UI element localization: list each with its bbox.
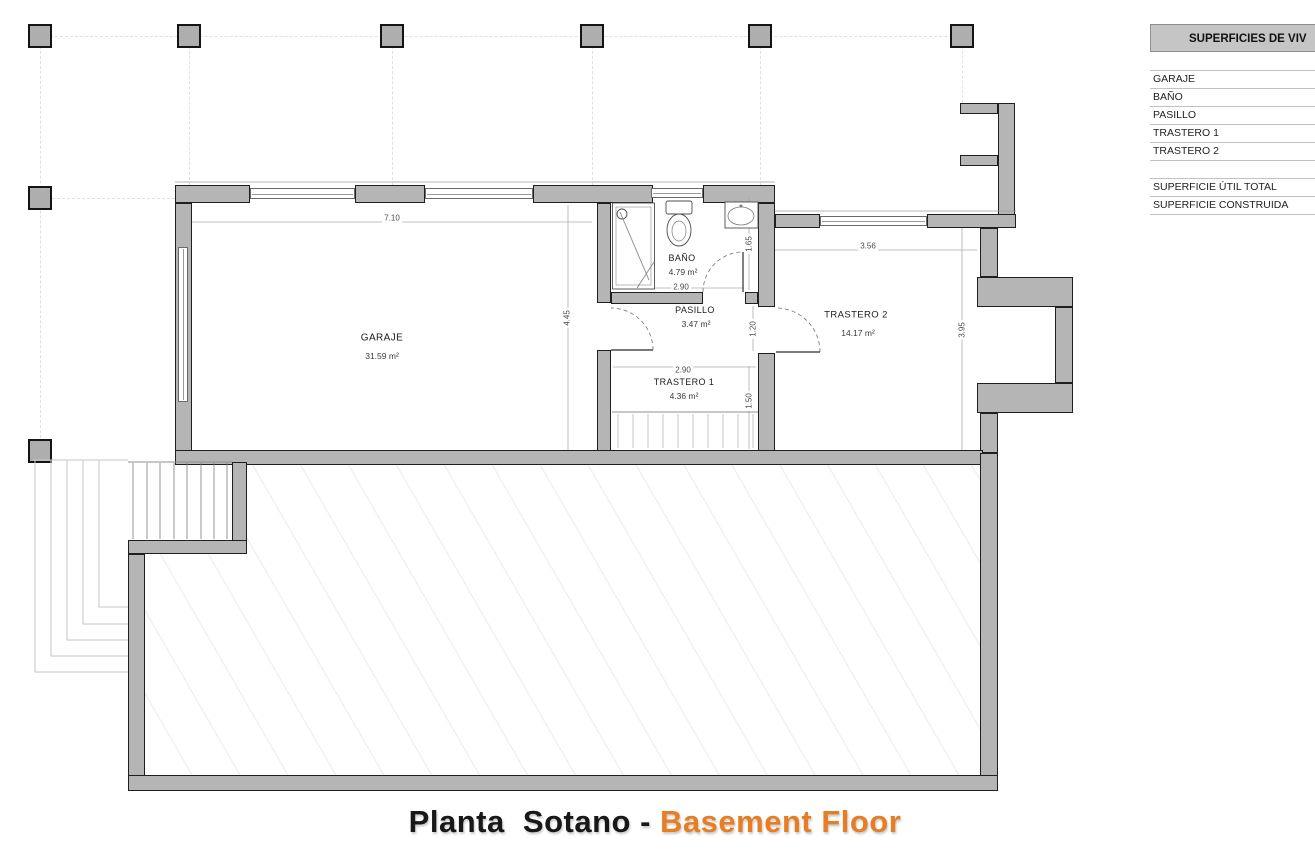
dim-pasillo-width: 1.20 bbox=[749, 319, 758, 339]
table-row: BAÑO bbox=[1150, 89, 1315, 107]
table-row: TRASTERO 1 bbox=[1150, 125, 1315, 143]
window bbox=[178, 247, 188, 402]
wall-segment bbox=[1055, 307, 1073, 383]
table-row bbox=[1150, 161, 1315, 179]
wall-segment bbox=[597, 350, 611, 453]
window bbox=[425, 188, 533, 199]
wall-segment bbox=[128, 540, 247, 554]
dim-trastero1-width: 2.90 bbox=[673, 366, 693, 375]
wall-segment bbox=[960, 155, 998, 166]
wall-segment bbox=[980, 228, 998, 277]
wall-segment bbox=[128, 775, 998, 791]
column bbox=[580, 24, 604, 48]
column bbox=[950, 24, 974, 48]
unexcavated-area-hatch bbox=[145, 465, 980, 775]
table-row: GARAJE bbox=[1150, 70, 1315, 89]
room-area-pasillo: 3.47 m² bbox=[682, 319, 711, 329]
column bbox=[28, 186, 52, 210]
wall-segment bbox=[232, 462, 247, 545]
table-row: TRASTERO 2 bbox=[1150, 143, 1315, 161]
room-area-garaje: 31.59 m² bbox=[365, 351, 399, 361]
grid-line bbox=[189, 36, 190, 185]
window bbox=[250, 188, 355, 199]
room-label-trastero1: TRASTERO 1 bbox=[654, 377, 715, 387]
room-label-garaje: GARAJE bbox=[361, 333, 403, 344]
dim-bano-width: 2.90 bbox=[671, 283, 691, 292]
dim-garage-depth: 4.45 bbox=[563, 308, 572, 328]
grid-line bbox=[40, 36, 41, 438]
window bbox=[651, 188, 703, 198]
wall-segment bbox=[533, 185, 653, 203]
column bbox=[28, 439, 52, 463]
title-spanish: Planta Sotano - bbox=[409, 804, 660, 839]
wall-segment bbox=[977, 277, 1073, 307]
wall-segment bbox=[175, 185, 250, 203]
grid-line bbox=[760, 36, 761, 185]
room-area-trastero2: 14.17 m² bbox=[841, 328, 875, 338]
wall-segment bbox=[927, 214, 1016, 228]
wall-segment bbox=[128, 554, 145, 791]
dim-trastero2-width: 3.56 bbox=[858, 242, 878, 251]
wall-segment bbox=[758, 353, 775, 453]
room-label-trastero2: TRASTERO 2 bbox=[824, 310, 888, 321]
wall-segment bbox=[758, 203, 775, 307]
title-english: Basement Floor bbox=[660, 804, 901, 839]
grid-line bbox=[592, 36, 593, 185]
room-area-bano: 4.79 m² bbox=[669, 267, 698, 277]
column bbox=[177, 24, 201, 48]
window bbox=[820, 216, 927, 226]
wall-segment bbox=[980, 453, 998, 791]
dim-garage-width: 7.10 bbox=[382, 214, 402, 223]
wall-segment bbox=[175, 450, 983, 465]
wall-segment bbox=[775, 214, 820, 228]
grid-line bbox=[392, 36, 393, 185]
wall-segment bbox=[745, 292, 758, 304]
wall-segment bbox=[611, 292, 703, 304]
dim-trastero1-height: 1.50 bbox=[745, 391, 754, 411]
column bbox=[748, 24, 772, 48]
dim-bano-height: 1.65 bbox=[745, 234, 754, 254]
surfaces-table-header: SUPERFICIES DE VIV bbox=[1150, 24, 1315, 52]
table-spacer bbox=[1150, 52, 1315, 70]
wall-segment bbox=[597, 203, 611, 303]
floorplan-page: 7.10 4.45 GARAJE 31.59 m² BAÑO 4.79 m² 2… bbox=[0, 0, 1315, 863]
wall-segment bbox=[998, 103, 1015, 215]
column bbox=[28, 24, 52, 48]
room-area-trastero1: 4.36 m² bbox=[670, 391, 699, 401]
surfaces-table: SUPERFICIES DE VIV GARAJE BAÑO PASILLO T… bbox=[1150, 24, 1315, 215]
room-label-bano: BAÑO bbox=[668, 253, 695, 263]
wall-segment bbox=[960, 103, 998, 114]
table-row: SUPERFICIE ÚTIL TOTAL bbox=[1150, 179, 1315, 197]
room-label-pasillo: PASILLO bbox=[675, 305, 715, 315]
wall-segment bbox=[703, 185, 775, 203]
grid-line bbox=[52, 198, 175, 199]
page-title: Planta Sotano - Basement Floor bbox=[305, 804, 1005, 840]
table-row: PASILLO bbox=[1150, 107, 1315, 125]
table-row: SUPERFICIE CONSTRUIDA bbox=[1150, 197, 1315, 215]
column bbox=[380, 24, 404, 48]
dim-trastero2-depth: 3.95 bbox=[958, 320, 967, 340]
exterior-stairs bbox=[128, 462, 232, 540]
wall-segment bbox=[355, 185, 425, 203]
wall-segment bbox=[977, 383, 1073, 413]
wall-segment bbox=[980, 413, 998, 453]
